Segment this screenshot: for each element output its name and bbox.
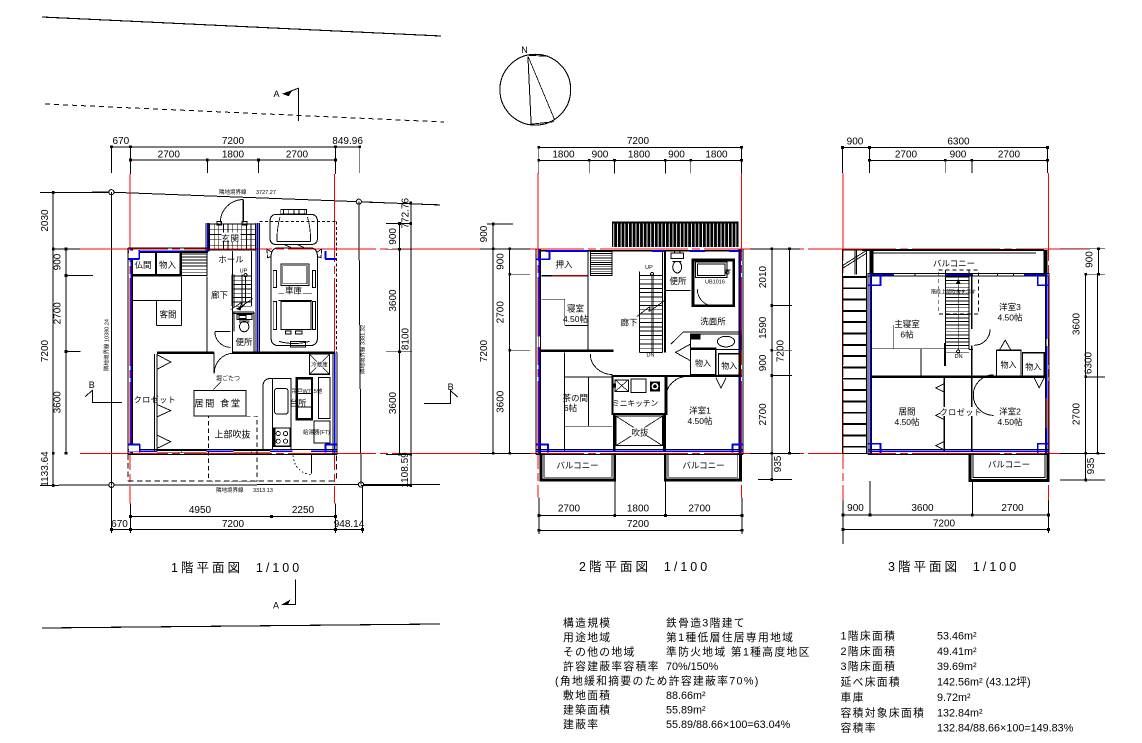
svg-text:6帖: 6帖	[900, 330, 914, 340]
svg-text:4.50帖: 4.50帖	[687, 416, 713, 426]
svg-text:3600: 3600	[1072, 312, 1083, 335]
svg-text:クロゼット: クロゼット	[134, 394, 177, 404]
svg-text:900: 900	[950, 149, 967, 160]
svg-text:132.84/88.66×100=149.83%: 132.84/88.66×100=149.83%	[937, 723, 1074, 735]
svg-text:7200: 7200	[222, 136, 245, 147]
svg-text:許容建蔽率容積率: 許容建蔽率容積率	[563, 659, 660, 673]
svg-text:2700: 2700	[688, 504, 711, 515]
svg-text:(角地緩和摘要のため許容建蔽率70%): (角地緩和摘要のため許容建蔽率70%)	[555, 674, 760, 688]
svg-text:車庫: 車庫	[285, 286, 303, 296]
svg-text:バルコニー: バルコニー	[682, 461, 724, 471]
svg-text:冷蔵庫: 冷蔵庫	[311, 361, 328, 369]
svg-text:132.84m²: 132.84m²	[937, 707, 983, 719]
svg-text:2700: 2700	[998, 149, 1021, 160]
svg-text:1階平面図 1/100: 1階平面図 1/100	[171, 560, 302, 575]
svg-text:7200: 7200	[40, 339, 51, 362]
svg-text:3727.27: 3727.27	[256, 190, 276, 196]
svg-text:洋室1: 洋室1	[689, 406, 711, 416]
svg-text:バルコニー: バルコニー	[988, 460, 1030, 470]
svg-text:1800: 1800	[628, 149, 651, 160]
svg-text:6300: 6300	[1084, 351, 1095, 374]
svg-text:900: 900	[668, 149, 685, 160]
svg-text:55.89/88.66×100=63.04%: 55.89/88.66×100=63.04%	[666, 719, 791, 731]
svg-text:第1種低層住居専用地域: 第1種低層住居専用地域	[666, 630, 794, 644]
svg-text:仏間: 仏間	[134, 260, 151, 270]
svg-text:900: 900	[388, 228, 399, 245]
svg-text:洋室2: 洋室2	[999, 407, 1021, 417]
svg-text:772.76: 772.76	[400, 197, 411, 228]
svg-text:構造規模: 構造規模	[563, 616, 611, 630]
svg-text:1800: 1800	[552, 149, 575, 160]
svg-text:4.50帖: 4.50帖	[997, 313, 1023, 323]
svg-text:7200: 7200	[933, 518, 956, 529]
svg-text:容積率: 容積率	[841, 721, 877, 735]
svg-text:1800: 1800	[705, 149, 728, 160]
svg-text:物入: 物入	[721, 361, 737, 371]
svg-text:2700: 2700	[158, 149, 181, 160]
svg-text:居間 食堂: 居間 食堂	[194, 398, 241, 409]
svg-text:UB1016: UB1016	[705, 280, 725, 286]
svg-text:900: 900	[592, 149, 609, 160]
svg-text:2階平面図 1/100: 2階平面図 1/100	[579, 559, 710, 574]
svg-text:2700: 2700	[496, 301, 507, 324]
svg-text:1階床面積: 1階床面積	[841, 629, 897, 643]
svg-text:建蔽率: 建蔽率	[563, 717, 599, 731]
svg-text:容積対象床面積: 容積対象床面積	[841, 705, 926, 719]
svg-text:隣地境界線: 隣地境界線	[216, 486, 244, 494]
svg-text:3600: 3600	[911, 503, 934, 514]
svg-text:物入: 物入	[695, 358, 711, 368]
svg-text:バルコニー: バルコニー	[556, 461, 598, 471]
svg-text:49.41m²: 49.41m²	[937, 646, 977, 658]
svg-text:88.66m²: 88.66m²	[666, 690, 706, 702]
svg-text:39.69m²: 39.69m²	[937, 661, 977, 673]
svg-text:物入: 物入	[159, 260, 177, 270]
svg-text:4.50帖: 4.50帖	[997, 417, 1023, 427]
svg-text:玄関: 玄関	[221, 234, 240, 244]
svg-text:900: 900	[479, 225, 490, 242]
svg-text:670: 670	[111, 519, 128, 530]
svg-text:ホール: ホール	[218, 254, 244, 264]
svg-text:2700: 2700	[558, 504, 581, 515]
svg-text:押入: 押入	[555, 259, 573, 269]
svg-text:茶の間: 茶の間	[563, 393, 589, 403]
svg-text:B: B	[89, 380, 95, 390]
svg-text:849.96: 849.96	[332, 136, 363, 147]
svg-text:1133.64: 1133.64	[40, 451, 51, 487]
svg-text:便所: 便所	[235, 337, 253, 347]
svg-text:7200: 7200	[776, 339, 787, 362]
svg-text:900: 900	[847, 136, 864, 147]
svg-text:8100: 8100	[400, 327, 411, 350]
svg-text:3階床面積: 3階床面積	[841, 659, 897, 673]
svg-text:2700: 2700	[758, 403, 769, 426]
svg-text:廊下: 廊下	[211, 290, 229, 300]
svg-text:2700: 2700	[1072, 402, 1083, 425]
svg-text:2030: 2030	[40, 209, 51, 232]
svg-text:948.14: 948.14	[334, 519, 365, 530]
svg-text:寝室: 寝室	[567, 304, 585, 314]
svg-text:DN: DN	[955, 354, 963, 360]
svg-text:隣地境界線 3381.32: 隣地境界線 3381.32	[359, 325, 367, 374]
svg-text:堀ごたつ: 堀ごたつ	[216, 375, 240, 383]
svg-text:車庫: 車庫	[841, 690, 865, 704]
svg-text:1590: 1590	[758, 316, 769, 339]
svg-text:主寝室: 主寝室	[894, 319, 920, 329]
svg-text:3600: 3600	[496, 390, 507, 413]
svg-text:クロゼット: クロゼット	[940, 407, 983, 417]
svg-text:3600: 3600	[53, 391, 64, 414]
svg-text:935: 935	[1086, 457, 1097, 474]
svg-text:建築面積: 建築面積	[563, 703, 611, 717]
svg-text:上部吹抜: 上部吹抜	[214, 429, 250, 440]
svg-text:A: A	[273, 89, 279, 99]
svg-text:2階床面積: 2階床面積	[841, 644, 897, 658]
svg-text:ミニキッチン: ミニキッチン	[612, 399, 658, 408]
svg-text:その他の地域: その他の地域	[563, 646, 636, 659]
svg-text:1800: 1800	[222, 149, 245, 160]
svg-text:バルコニー: バルコニー	[933, 258, 975, 268]
svg-text:台所: 台所	[289, 398, 307, 408]
svg-text:UP: UP	[645, 265, 653, 271]
svg-text:洗面所: 洗面所	[700, 317, 726, 327]
svg-text:6300: 6300	[947, 136, 970, 147]
svg-text:隣地境界線 10380.24: 隣地境界線 10380.24	[103, 319, 111, 371]
svg-text:2700: 2700	[1001, 503, 1024, 514]
svg-text:給湯器(FT): 給湯器(FT)	[303, 428, 330, 436]
svg-text:3600: 3600	[388, 391, 399, 414]
svg-text:1108.59: 1108.59	[400, 452, 411, 488]
svg-text:居間: 居間	[898, 407, 915, 417]
svg-text:2700: 2700	[286, 149, 309, 160]
svg-text:2250: 2250	[292, 505, 315, 516]
svg-text:7200: 7200	[627, 136, 650, 147]
svg-text:53.46m²: 53.46m²	[937, 631, 977, 643]
svg-text:隣地境界線: 隣地境界線	[219, 188, 247, 196]
svg-text:1800: 1800	[627, 504, 650, 515]
svg-text:7200: 7200	[627, 519, 650, 530]
svg-text:6帖: 6帖	[564, 403, 578, 413]
svg-text:7200: 7200	[222, 519, 245, 530]
svg-text:900: 900	[53, 253, 64, 270]
svg-text:9.72m²: 9.72m²	[937, 692, 971, 704]
svg-text:客間: 客間	[159, 310, 176, 320]
svg-text:N: N	[521, 45, 528, 55]
svg-text:敷地面積: 敷地面積	[563, 688, 611, 702]
svg-text:2700: 2700	[895, 149, 918, 160]
svg-text:900: 900	[758, 354, 769, 371]
svg-text:7200: 7200	[479, 339, 490, 362]
svg-text:900: 900	[1085, 251, 1096, 268]
svg-text:A: A	[273, 601, 279, 611]
svg-text:670: 670	[113, 136, 130, 147]
svg-text:便所: 便所	[669, 276, 687, 286]
svg-text:鉄骨造3階建て: 鉄骨造3階建て	[666, 616, 746, 630]
svg-text:吹抜: 吹抜	[631, 428, 649, 438]
svg-text:2700: 2700	[53, 302, 64, 325]
svg-text:70%/150%: 70%/150%	[666, 661, 719, 673]
svg-text:物入: 物入	[1001, 360, 1017, 370]
svg-text:用途地域: 用途地域	[563, 630, 611, 644]
svg-text:3313.13: 3313.13	[253, 488, 273, 494]
svg-text:4.50帖: 4.50帖	[563, 314, 589, 324]
svg-text:3600: 3600	[388, 289, 399, 312]
svg-text:延べ床面積: 延べ床面積	[841, 675, 901, 689]
svg-text:準防火地域 第1種高度地区: 準防火地域 第1種高度地区	[666, 645, 811, 659]
svg-text:900: 900	[496, 253, 507, 270]
svg-text:DN: DN	[647, 353, 655, 359]
svg-text:廊下: 廊下	[620, 318, 638, 328]
svg-text:2010: 2010	[758, 265, 769, 288]
svg-text:4.50帖: 4.50帖	[894, 417, 920, 427]
svg-text:物入: 物入	[1025, 362, 1041, 372]
svg-text:142.56m² (43.12坪): 142.56m² (43.12坪)	[937, 676, 1031, 689]
svg-text:55.89m²: 55.89m²	[666, 705, 706, 717]
svg-text:4950: 4950	[189, 505, 212, 516]
svg-text:900: 900	[847, 503, 864, 514]
svg-text:洋室3: 洋室3	[999, 302, 1021, 312]
svg-text:3階平面図 1/100: 3階平面図 1/100	[888, 559, 1019, 574]
svg-text:935: 935	[773, 455, 784, 472]
